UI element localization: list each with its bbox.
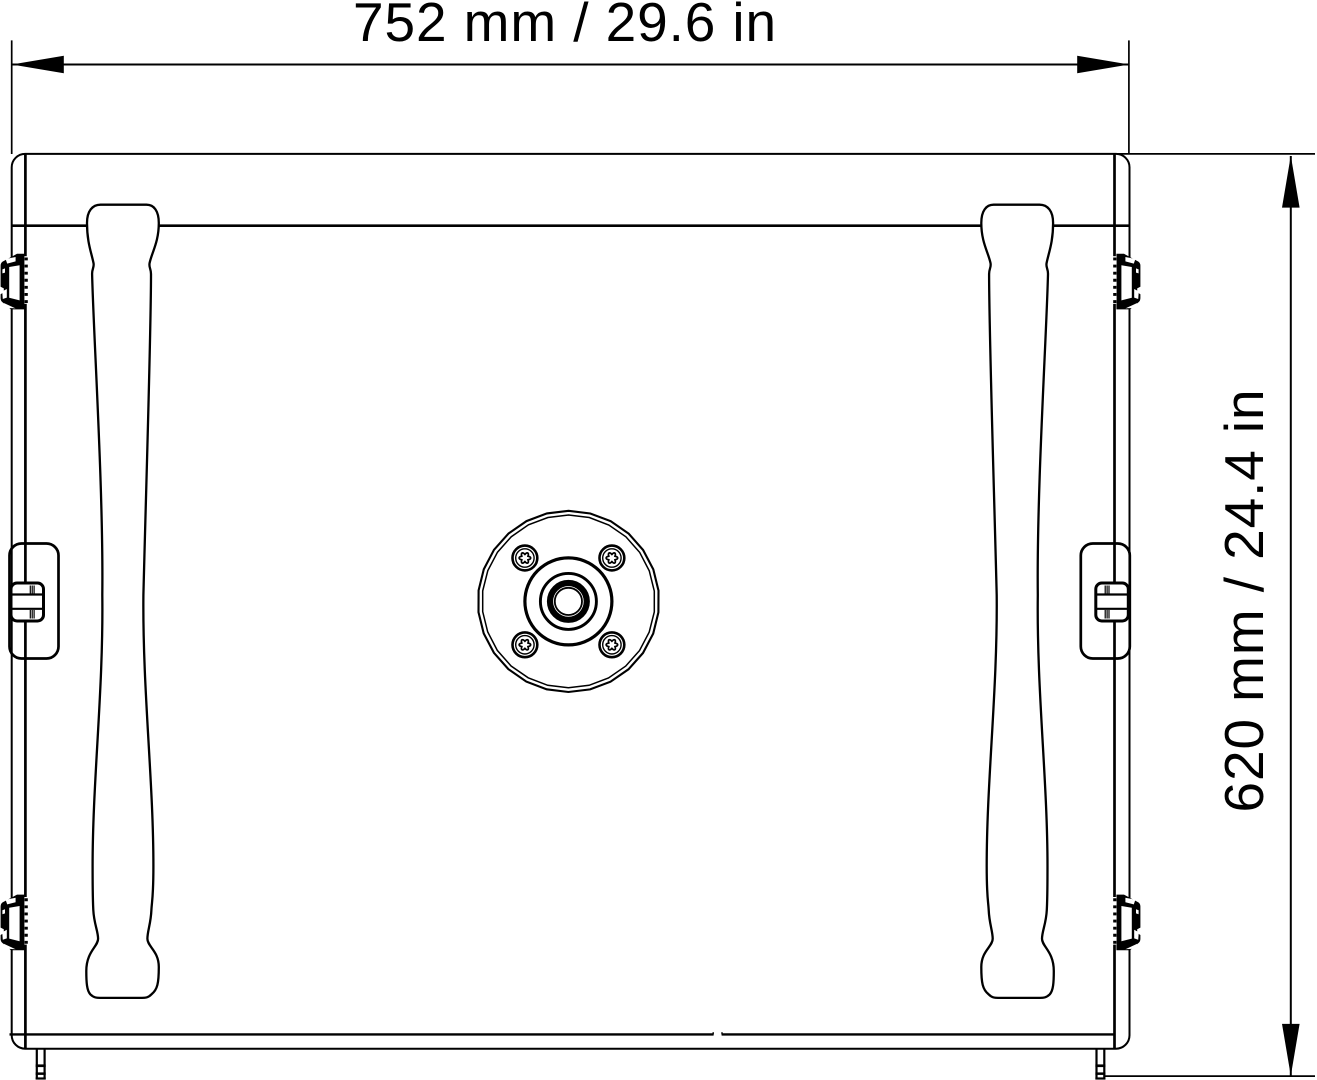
svg-text:752 mm / 29.6 in: 752 mm / 29.6 in xyxy=(353,0,777,53)
svg-text:620 mm / 24.4 in: 620 mm / 24.4 in xyxy=(1213,388,1275,812)
